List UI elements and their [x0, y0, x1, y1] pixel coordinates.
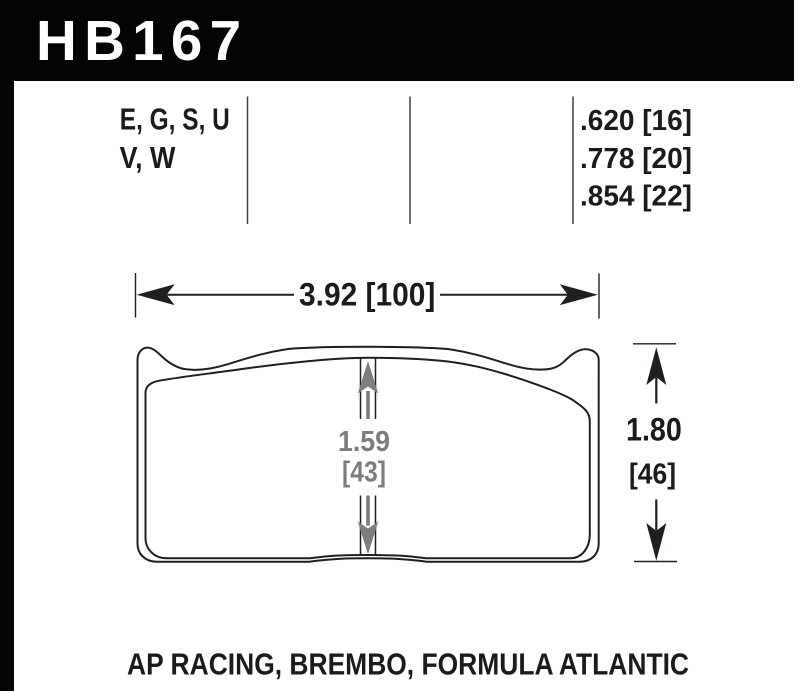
svg-text:V, W: V, W: [120, 141, 176, 175]
svg-text:AP RACING, BREMBO, FORMULA ATL: AP RACING, BREMBO, FORMULA ATLANTIC: [127, 646, 689, 681]
svg-text:.778 [20]: .778 [20]: [580, 143, 692, 175]
svg-text:1.59: 1.59: [338, 426, 390, 458]
svg-text:.854 [22]: .854 [22]: [580, 181, 692, 213]
svg-text:3.92 [100]: 3.92 [100]: [299, 276, 435, 312]
svg-text:[43]: [43]: [342, 457, 386, 489]
svg-text:[46]: [46]: [629, 458, 676, 490]
svg-text:1.80: 1.80: [626, 411, 682, 447]
svg-text:.620 [16]: .620 [16]: [580, 105, 692, 137]
svg-text:HB167: HB167: [36, 9, 241, 72]
svg-text:E, G, S, U: E, G, S, U: [120, 103, 230, 137]
